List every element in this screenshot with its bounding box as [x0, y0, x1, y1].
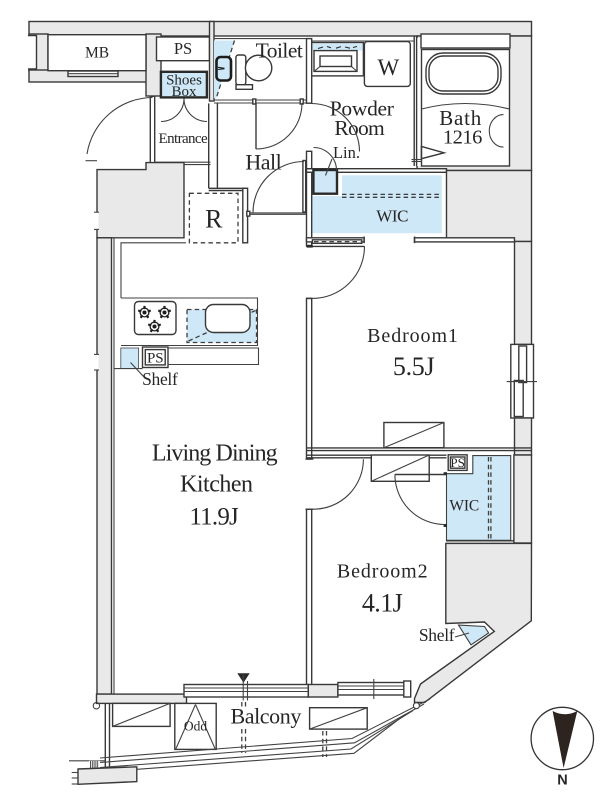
svg-text:Odd: Odd: [184, 719, 207, 734]
svg-text:Shelf: Shelf: [142, 369, 178, 389]
svg-text:Balcony: Balcony: [230, 704, 301, 729]
svg-text:PS: PS: [174, 39, 192, 58]
svg-text:Box: Box: [171, 84, 197, 100]
svg-text:PS: PS: [147, 351, 164, 367]
svg-text:1216: 1216: [443, 127, 482, 149]
svg-text:Entrance: Entrance: [159, 131, 208, 147]
svg-text:MB: MB: [85, 45, 109, 62]
svg-text:Lin.: Lin.: [333, 143, 360, 162]
svg-text:11.9J: 11.9J: [189, 504, 239, 531]
svg-text:5.5J: 5.5J: [393, 352, 435, 381]
svg-text:WIC: WIC: [449, 498, 479, 515]
svg-text:Hall: Hall: [245, 149, 281, 174]
svg-text:4.1J: 4.1J: [362, 589, 403, 618]
svg-text:Toilet: Toilet: [256, 38, 303, 62]
svg-text:W: W: [378, 55, 400, 80]
svg-text:Kitchen: Kitchen: [180, 472, 253, 498]
svg-text:N: N: [557, 773, 567, 789]
svg-text:Living Dining: Living Dining: [152, 441, 278, 467]
svg-text:Room: Room: [334, 116, 385, 140]
svg-text:PS: PS: [450, 455, 464, 470]
svg-text:Shelf: Shelf: [419, 625, 455, 645]
svg-text:WIC: WIC: [376, 207, 408, 226]
svg-text:Bedroom2: Bedroom2: [337, 561, 429, 583]
svg-text:Bedroom1: Bedroom1: [367, 325, 459, 347]
svg-text:R: R: [205, 205, 223, 234]
